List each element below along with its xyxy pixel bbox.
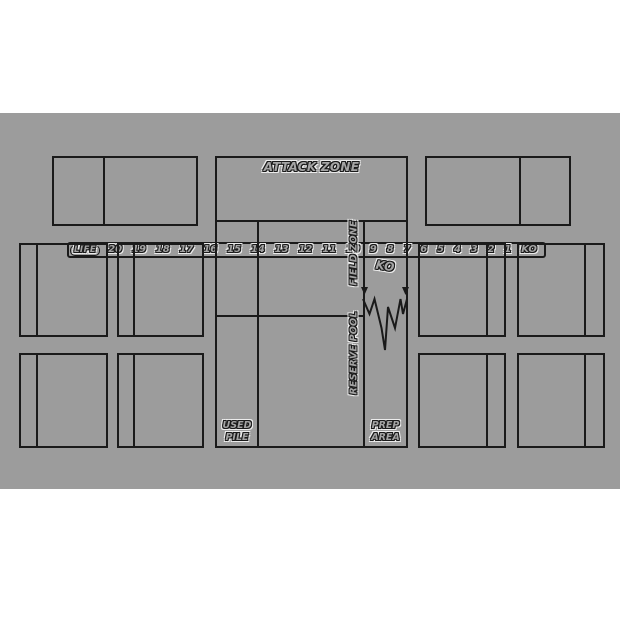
field-zone-cell[interactable] — [259, 222, 363, 315]
slot-divider — [36, 355, 38, 446]
used-pile-label: USED PILE — [217, 420, 257, 443]
slot-divider — [133, 355, 135, 446]
slot-left-a[interactable] — [19, 243, 108, 337]
slot-top-left[interactable] — [52, 156, 198, 226]
center-board: ATTACK ZONE FIELD ZONE RESERVE POOL KO U… — [215, 156, 408, 448]
attack-zone-label: ATTACK ZONE — [217, 160, 406, 174]
slot-divider — [486, 245, 488, 335]
ko-burst-icon — [358, 282, 412, 354]
playmat: LIFE 2019181716151413121110987654321KO A… — [0, 113, 620, 489]
slot-right-b[interactable] — [517, 243, 605, 337]
used-pile-line1: USED — [223, 420, 252, 431]
slot-divider — [584, 355, 586, 446]
slot-divider — [103, 158, 105, 224]
prep-area-line2: AREA — [371, 432, 400, 443]
slot-left-b[interactable] — [117, 243, 204, 337]
slot-divider — [36, 245, 38, 335]
attack-zone-cell[interactable]: ATTACK ZONE — [217, 158, 406, 220]
slot-top-right[interactable] — [425, 156, 571, 226]
ko-label: KO — [375, 258, 396, 274]
field-zone-label: FIELD ZONE — [349, 220, 360, 285]
prep-area-label: PREP AREA — [365, 420, 406, 443]
slot-right-c[interactable] — [418, 353, 506, 448]
slot-divider — [519, 158, 521, 224]
slot-right-d[interactable] — [517, 353, 605, 448]
slot-divider — [133, 245, 135, 335]
slot-left-d[interactable] — [117, 353, 204, 448]
slot-right-a[interactable] — [418, 243, 506, 337]
slot-divider — [584, 245, 586, 335]
slot-left-c[interactable] — [19, 353, 108, 448]
left-strip-upper-cell[interactable] — [217, 222, 257, 315]
slot-divider — [486, 355, 488, 446]
prep-area-line1: PREP — [372, 420, 400, 431]
reserve-pool-cell[interactable] — [259, 317, 363, 446]
used-pile-line2: PILE — [225, 432, 248, 443]
